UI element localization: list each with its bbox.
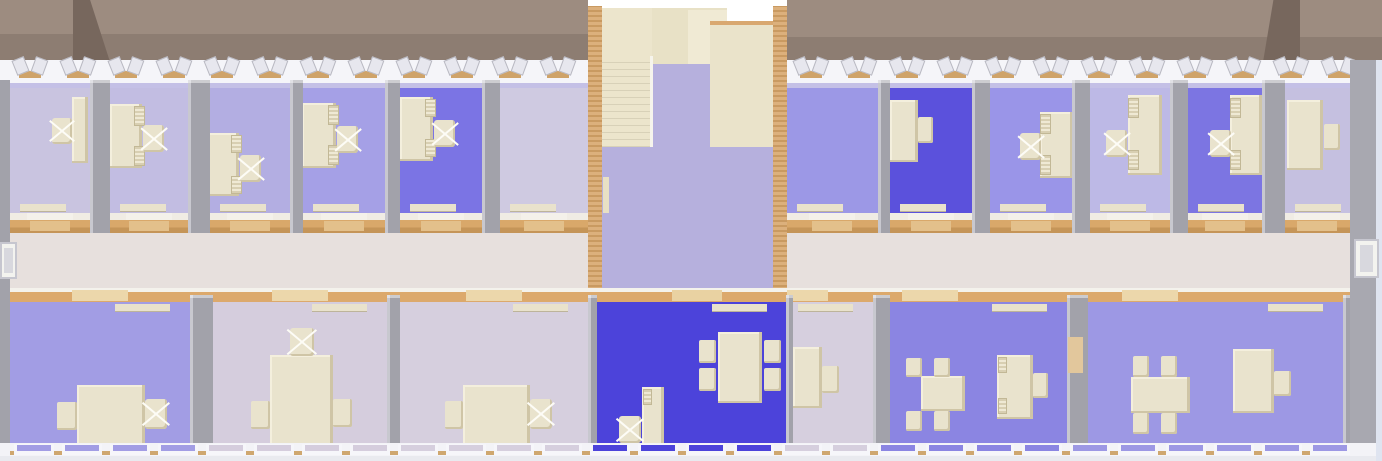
window-glass <box>641 445 675 451</box>
window-glass <box>497 445 531 451</box>
corridor-door-sill <box>908 212 954 220</box>
desk <box>1233 349 1274 413</box>
partition-wall <box>90 80 110 233</box>
corridor-door <box>272 290 328 301</box>
desk <box>1287 100 1323 170</box>
lobby-door-gap <box>672 290 722 301</box>
open-door-leaf <box>115 304 170 311</box>
partition-wall <box>1262 80 1285 233</box>
window-glass <box>401 445 435 451</box>
meeting-table <box>718 332 762 403</box>
corridor-door <box>421 221 461 231</box>
chair <box>934 358 950 377</box>
chair <box>1133 413 1149 434</box>
desk-hutch <box>643 389 652 405</box>
open-door-panel <box>1068 337 1083 373</box>
swivel-chair <box>52 118 72 144</box>
swivel-chair <box>1020 133 1041 160</box>
chair <box>445 401 463 429</box>
meeting-table <box>270 355 333 449</box>
chair <box>1161 356 1177 377</box>
desk-hutch <box>1128 98 1139 118</box>
room-B7-floor <box>1088 302 1343 443</box>
chair <box>764 368 781 391</box>
window-glass <box>737 445 771 451</box>
desk-hutch <box>998 398 1007 414</box>
open-door-leaf <box>513 304 568 311</box>
open-door-leaf <box>1268 304 1323 311</box>
chair <box>906 411 922 431</box>
chair <box>934 411 950 431</box>
corridor-door <box>72 290 128 301</box>
corridor-door <box>1297 221 1337 231</box>
desk-hutch <box>425 99 436 117</box>
window-glass <box>353 445 387 451</box>
window-glass <box>65 445 99 451</box>
partition-wall <box>873 295 890 443</box>
chair <box>699 368 716 391</box>
chair <box>1033 373 1048 398</box>
chair <box>764 340 781 363</box>
open-door-leaf <box>313 204 359 211</box>
room-A7-floor <box>787 88 878 213</box>
window-glass <box>881 445 915 451</box>
stair-side-edge <box>650 56 653 148</box>
desk-hutch <box>1230 98 1241 118</box>
stairwell-west-wall <box>588 6 602 295</box>
partition-wall <box>588 295 597 443</box>
open-door-leaf <box>312 304 367 311</box>
chair <box>251 401 270 429</box>
swivel-chair <box>337 126 358 153</box>
window-glass <box>1265 445 1299 451</box>
stairwell-opening-floor <box>652 64 710 148</box>
corridor-door <box>466 290 522 301</box>
window-glass <box>161 445 195 451</box>
corridor-door-sill <box>521 212 567 220</box>
corridor-door <box>230 221 270 231</box>
swivel-chair <box>434 120 455 147</box>
desk <box>890 100 918 162</box>
window-glass <box>1073 445 1107 451</box>
window-glass <box>1169 445 1203 451</box>
desk-hutch <box>231 135 242 153</box>
partition-wall <box>385 80 400 233</box>
corridor-door-sill <box>1294 212 1340 220</box>
swivel-chair <box>240 155 261 182</box>
window-glass <box>977 445 1011 451</box>
corridor-door <box>1122 290 1178 301</box>
partition-wall <box>1072 80 1090 233</box>
partition-wall <box>972 80 990 233</box>
corridor-door <box>524 221 564 231</box>
desk-hutch <box>1040 114 1051 134</box>
corridor-door-sill <box>1202 212 1248 220</box>
partition-wall <box>1170 80 1188 233</box>
swivel-chair <box>1106 130 1127 157</box>
swivel-chair <box>1210 130 1231 157</box>
window-glass <box>1217 445 1251 451</box>
window-glass <box>257 445 291 451</box>
window-glass <box>833 445 867 451</box>
chair <box>906 358 922 377</box>
open-door-leaf <box>797 204 843 211</box>
partition-wall <box>878 80 890 233</box>
corridor-door <box>812 221 852 231</box>
corridor-door <box>129 221 169 231</box>
stair-upper-flight <box>602 8 652 56</box>
open-door-leaf <box>1000 204 1046 211</box>
partition-wall <box>786 295 793 443</box>
partition-wall <box>190 295 213 443</box>
east-entrance-door-leaf <box>1360 245 1373 272</box>
chair <box>1161 413 1177 434</box>
window-glass <box>449 445 483 451</box>
open-door-leaf <box>1198 204 1244 211</box>
partition-wall <box>482 80 500 233</box>
lobby-floor <box>602 147 773 295</box>
corridor-door-sill <box>1008 212 1054 220</box>
west-entrance-door-leaf <box>4 248 13 273</box>
south-facade-bottom-strip <box>0 456 1382 461</box>
open-door-leaf <box>20 204 66 211</box>
window-glass <box>545 445 579 451</box>
partition-wall <box>1343 295 1350 443</box>
chair <box>1133 356 1149 377</box>
window-glass <box>113 445 147 451</box>
window-glass <box>593 445 627 451</box>
open-door-leaf <box>1295 204 1341 211</box>
corridor-floor-left <box>10 225 588 293</box>
lobby-side-door <box>603 177 609 213</box>
open-door-leaf <box>992 304 1047 311</box>
corridor-door-sill <box>227 212 273 220</box>
corridor-door-sill <box>27 212 73 220</box>
corridor-door <box>902 290 958 301</box>
swivel-chair <box>143 125 164 152</box>
corridor-door <box>1205 221 1245 231</box>
chair <box>57 402 77 430</box>
stairwell-east-wall <box>773 6 787 295</box>
open-door-leaf <box>712 304 767 311</box>
window-glass <box>929 445 963 451</box>
chair <box>822 366 839 393</box>
room-A6-floor <box>500 88 588 213</box>
window-glass <box>785 445 819 451</box>
partition-wall <box>188 80 210 233</box>
corridor-door-sill <box>126 212 172 220</box>
desk <box>72 97 88 163</box>
partition-wall <box>387 295 400 443</box>
window-glass <box>1025 445 1059 451</box>
window-glass <box>1121 445 1155 451</box>
open-door-leaf <box>798 304 853 311</box>
window-glass <box>305 445 339 451</box>
desk-hutch <box>998 357 1007 373</box>
desk <box>793 347 822 408</box>
chair <box>1324 124 1340 150</box>
desk-hutch <box>134 106 145 126</box>
meeting-table <box>1131 377 1190 413</box>
corridor-door <box>30 221 70 231</box>
open-door-leaf <box>900 204 946 211</box>
meeting-table <box>921 376 965 411</box>
chair <box>699 340 716 363</box>
desk-hutch <box>328 105 339 125</box>
corridor-floor-right <box>787 225 1350 293</box>
open-door-leaf <box>510 204 556 211</box>
corridor-door-sill <box>321 212 367 220</box>
swivel-chair <box>290 328 314 356</box>
meeting-table <box>77 385 145 445</box>
stair-right-flight <box>710 25 773 148</box>
swivel-chair <box>619 416 641 443</box>
chair <box>918 117 933 143</box>
meeting-table <box>463 385 530 445</box>
window-glass <box>689 445 723 451</box>
swivel-chair <box>530 399 552 429</box>
partition-wall <box>290 80 303 233</box>
corridor-door <box>1011 221 1051 231</box>
open-door-leaf <box>120 204 166 211</box>
open-door-leaf <box>1100 204 1146 211</box>
window-glass <box>209 445 243 451</box>
open-door-leaf <box>410 204 456 211</box>
chair <box>333 399 352 427</box>
chair <box>1274 371 1291 396</box>
stair-steps <box>602 56 652 147</box>
window-glass <box>17 445 51 451</box>
swivel-chair <box>145 399 167 429</box>
corridor-door <box>1110 221 1150 231</box>
corridor-door-sill <box>1107 212 1153 220</box>
corridor-door-sill <box>809 212 855 220</box>
floorplan-3d-view[interactable] <box>0 0 1382 461</box>
corridor-door-sill <box>418 212 464 220</box>
open-door-leaf <box>220 204 266 211</box>
window-glass <box>1313 445 1347 451</box>
corridor-door <box>911 221 951 231</box>
corridor-door <box>324 221 364 231</box>
